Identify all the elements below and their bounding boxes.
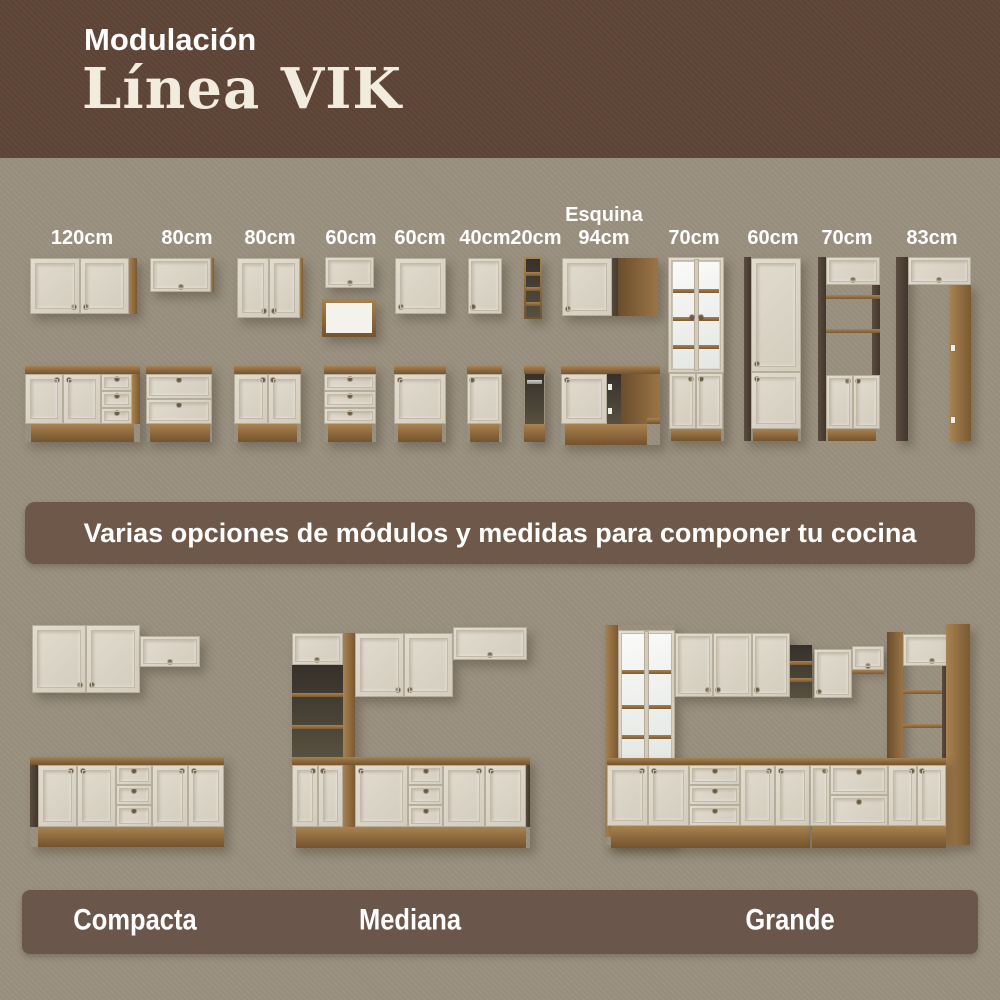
- poster-canvas: Modulación Línea VIK 120cm 80cm 80cm 60c…: [0, 0, 1000, 1000]
- module-label-size: 60cm: [394, 227, 445, 250]
- wall-cabinet-60cm: [395, 258, 446, 314]
- open-shelf: [607, 374, 621, 424]
- plinth: [470, 424, 499, 442]
- module-label-size: 120cm: [51, 227, 113, 250]
- base-corner-cabinet-94cm: [561, 366, 660, 445]
- hinge: [951, 417, 955, 423]
- knob: [271, 378, 275, 382]
- door: [669, 373, 696, 429]
- door: [32, 625, 86, 693]
- flip-door: [908, 257, 971, 285]
- knob: [566, 307, 570, 311]
- door: [696, 373, 723, 429]
- door: [234, 374, 268, 424]
- knob: [396, 688, 400, 692]
- flip-door: [140, 636, 200, 667]
- module-label-83cm: 83cm: [887, 198, 977, 250]
- base-drawer-cabinet-80cm: [146, 366, 212, 442]
- knob: [910, 769, 914, 773]
- knob: [132, 809, 136, 813]
- tall-oven-tower-70cm: [818, 257, 880, 441]
- base-run: [30, 757, 224, 847]
- door: [80, 258, 129, 314]
- hinge: [951, 345, 955, 351]
- knob: [471, 305, 475, 309]
- side-ledge: [647, 418, 660, 424]
- drawer: [830, 795, 888, 826]
- wall-flip-cabinet: [852, 646, 884, 670]
- drawer: [324, 374, 376, 391]
- mullion: [645, 632, 648, 761]
- wall-flip-cabinet-60cm: [325, 257, 374, 288]
- knob: [489, 769, 493, 773]
- drawer: [324, 408, 376, 424]
- module-label-70cm-a: 70cm: [649, 198, 739, 250]
- wall-cabinet-80cm: [237, 258, 303, 318]
- knob: [424, 809, 428, 813]
- knob: [713, 769, 717, 773]
- drawer: [101, 374, 132, 391]
- plinth: [31, 424, 134, 442]
- corner-open-shelf: [790, 645, 812, 698]
- door: [751, 372, 801, 429]
- door: [467, 374, 502, 424]
- shelf: [790, 661, 812, 665]
- countertop: [324, 366, 376, 374]
- knob: [424, 789, 428, 793]
- wall-niche-60cm: [322, 299, 376, 337]
- door: [888, 765, 917, 826]
- flip-door: [453, 627, 527, 660]
- tower-unit: [292, 633, 355, 757]
- countertop: [524, 366, 545, 374]
- base-run-right: [810, 758, 946, 848]
- countertop: [467, 366, 502, 374]
- kitchen-label-compacta: Compacta: [73, 904, 196, 938]
- base-cabinet-60cm: [394, 366, 446, 442]
- base-cabinet-40cm: [467, 366, 502, 442]
- base-run: [292, 757, 530, 848]
- knob: [408, 688, 412, 692]
- flip-door: [826, 257, 880, 285]
- plinth: [828, 429, 876, 441]
- module-label-size: 70cm: [821, 227, 872, 250]
- door: [188, 765, 224, 827]
- base-run-left: [607, 758, 810, 848]
- open-shelf: [292, 665, 343, 757]
- knob: [90, 683, 94, 687]
- open-shelf: [790, 645, 812, 698]
- knob: [937, 278, 941, 282]
- knob: [272, 309, 276, 313]
- shelf: [826, 295, 880, 299]
- shelf: [292, 725, 343, 729]
- plinth: [812, 826, 946, 848]
- knob: [755, 377, 759, 381]
- door: [25, 374, 63, 424]
- knob: [132, 769, 136, 773]
- door: [751, 258, 801, 372]
- knob: [470, 378, 474, 382]
- module-label-70cm-b: 70cm: [802, 198, 892, 250]
- plinth: [38, 827, 224, 847]
- module-label-size: 70cm: [668, 227, 719, 250]
- wood-panel: [887, 632, 903, 758]
- door: [318, 765, 343, 827]
- countertop: [810, 758, 946, 765]
- knob: [348, 377, 352, 381]
- door: [648, 765, 689, 826]
- module-label-size: 60cm: [325, 227, 376, 250]
- door: [269, 258, 300, 318]
- knob: [132, 789, 136, 793]
- knob: [168, 660, 172, 664]
- knob: [261, 378, 265, 382]
- shelf: [826, 329, 880, 333]
- knob: [652, 769, 656, 773]
- plinth: [150, 424, 210, 442]
- door: [355, 765, 408, 827]
- knob: [713, 789, 717, 793]
- door: [395, 258, 446, 314]
- knob: [321, 769, 325, 773]
- hinge: [608, 384, 612, 390]
- open-niche: [326, 303, 372, 333]
- door: [86, 625, 140, 693]
- door: [30, 258, 80, 314]
- knob: [716, 688, 720, 692]
- countertop: [30, 757, 224, 765]
- shelf: [526, 302, 540, 306]
- module-label-size: 20cm: [510, 227, 561, 250]
- dark-panel: [30, 765, 38, 827]
- wall-cabinet-40cm: [468, 258, 502, 314]
- knob: [706, 688, 710, 692]
- flip-door: [150, 258, 211, 292]
- countertop: [607, 758, 810, 765]
- header-band: Modulación Línea VIK: [0, 0, 1000, 158]
- knob: [857, 770, 861, 774]
- wall-corner-cabinet-94cm: [562, 258, 658, 316]
- shelf: [292, 693, 343, 697]
- knob: [851, 278, 855, 282]
- wall-cabinet: [32, 625, 140, 693]
- knob: [488, 653, 492, 657]
- knob: [817, 690, 821, 694]
- dark-panel: [818, 257, 826, 441]
- drawer: [101, 408, 132, 424]
- kitchen-size-bar: Compacta Mediana Grande: [22, 890, 978, 954]
- towel-rail: [527, 380, 542, 384]
- plinth: [565, 424, 647, 445]
- hinge: [608, 408, 612, 414]
- door: [713, 633, 752, 697]
- mullion: [695, 260, 698, 370]
- knob: [755, 688, 759, 692]
- door: [355, 633, 404, 697]
- door: [775, 765, 810, 826]
- module-label-size: 94cm: [578, 227, 629, 250]
- knob: [846, 379, 850, 383]
- dark-panel: [896, 257, 908, 441]
- door: [394, 374, 446, 424]
- door: [826, 375, 853, 429]
- drawer: [324, 391, 376, 408]
- knob: [179, 285, 183, 289]
- knob: [856, 379, 860, 383]
- drawer: [146, 399, 212, 424]
- wall-open-shelf-20cm: [524, 257, 542, 319]
- door: [237, 258, 269, 318]
- drawer: [830, 765, 888, 795]
- wood-panel: [621, 374, 660, 424]
- knob: [262, 309, 266, 313]
- shelf: [790, 678, 812, 682]
- drawer: [116, 765, 152, 785]
- drawer: [146, 374, 212, 399]
- plinth: [671, 429, 721, 441]
- door: [853, 375, 880, 429]
- module-label-size: 80cm: [244, 227, 295, 250]
- knob: [84, 305, 88, 309]
- module-label-size: 60cm: [747, 227, 798, 250]
- module-label-size: 80cm: [161, 227, 212, 250]
- knob: [640, 769, 644, 773]
- plinth: [524, 424, 545, 442]
- banner: Varias opciones de módulos y medidas par…: [25, 502, 975, 564]
- plinth: [328, 424, 372, 442]
- countertop: [146, 366, 212, 374]
- wood-panel: [129, 258, 137, 314]
- flip-door: [292, 633, 343, 665]
- header-kicker: Modulación: [84, 22, 256, 58]
- fridge-surround-83cm: [896, 257, 971, 441]
- knob: [78, 683, 82, 687]
- countertop: [25, 366, 140, 374]
- door: [63, 374, 101, 424]
- knob: [565, 378, 569, 382]
- knob: [311, 769, 315, 773]
- door: [468, 258, 502, 314]
- wall-cabinet: [814, 649, 852, 698]
- tall-pantry-60cm: [744, 257, 801, 441]
- door: [917, 765, 946, 826]
- door: [814, 649, 852, 698]
- knob: [55, 378, 59, 382]
- knob: [115, 377, 119, 381]
- knob: [398, 378, 402, 382]
- knob: [689, 377, 693, 381]
- door: [443, 765, 485, 827]
- door: [292, 765, 318, 827]
- knob: [857, 800, 861, 804]
- base-cabinet-120cm: [25, 366, 140, 442]
- wood-panel: [946, 624, 970, 845]
- knob: [690, 315, 694, 319]
- dark-panel: [526, 765, 530, 827]
- module-label-120cm: 120cm: [37, 198, 127, 250]
- drawer: [689, 785, 740, 805]
- drawer: [689, 805, 740, 826]
- countertop: [234, 366, 301, 374]
- shelf: [526, 272, 540, 276]
- wall-flip-cabinet: [453, 627, 527, 660]
- door: [740, 765, 775, 826]
- knob: [348, 281, 352, 285]
- knob: [115, 411, 119, 415]
- countertop: [394, 366, 446, 374]
- module-label-esquina-94cm: Esquina94cm: [559, 198, 649, 250]
- wall-flip-cabinet: [140, 636, 200, 667]
- door: [77, 765, 116, 827]
- kitchen-label-grande: Grande: [745, 904, 834, 938]
- knob: [713, 809, 717, 813]
- drawer: [116, 805, 152, 827]
- module-label-80cm-a: 80cm: [142, 198, 232, 250]
- drawer: [408, 765, 443, 785]
- knob: [177, 378, 181, 382]
- knob: [359, 769, 363, 773]
- knob: [72, 305, 76, 309]
- module-label-size: 83cm: [906, 227, 957, 250]
- wall-flip-cabinet-80cm: [150, 258, 214, 292]
- door: [485, 765, 526, 827]
- plinth: [238, 424, 297, 442]
- flip-door: [852, 646, 884, 670]
- knob: [755, 362, 759, 366]
- dark-panel: [744, 257, 751, 441]
- knob: [779, 769, 783, 773]
- wood-panel: [132, 374, 140, 424]
- knob: [699, 315, 703, 319]
- knob: [348, 411, 352, 415]
- door: [561, 374, 607, 424]
- flip-door: [325, 257, 374, 288]
- plinth: [398, 424, 442, 442]
- door: [268, 374, 301, 424]
- knob: [348, 394, 352, 398]
- knob: [699, 377, 703, 381]
- knob: [767, 769, 771, 773]
- module-label-top: Esquina: [565, 204, 643, 227]
- wood-panel: [343, 765, 355, 827]
- door: [152, 765, 188, 827]
- wood-panel: [618, 258, 658, 316]
- knob: [177, 403, 181, 407]
- base-drawer-cabinet-60cm: [324, 366, 376, 442]
- shelf: [526, 287, 540, 291]
- knob: [823, 769, 827, 773]
- knob: [115, 394, 119, 398]
- knob: [866, 664, 870, 668]
- knob: [424, 769, 428, 773]
- countertop: [292, 757, 530, 765]
- wall-cabinet: [355, 633, 453, 697]
- knob: [67, 378, 71, 382]
- knob: [315, 658, 319, 662]
- door: [752, 633, 790, 697]
- countertop: [561, 366, 660, 374]
- drawer: [408, 805, 443, 827]
- tall-glass-cabinet-70cm: [668, 257, 724, 441]
- knob: [930, 659, 934, 663]
- knob: [192, 769, 196, 773]
- knob: [180, 769, 184, 773]
- plinth: [611, 826, 810, 848]
- plinth: [296, 827, 526, 848]
- wood-panel: [211, 258, 214, 292]
- drawer: [101, 391, 132, 408]
- knob: [920, 769, 924, 773]
- knob: [69, 769, 73, 773]
- plinth: [753, 429, 798, 441]
- shelf: [852, 670, 884, 674]
- door: [607, 765, 648, 826]
- drawer: [116, 785, 152, 805]
- knob: [477, 769, 481, 773]
- wall-cabinet-run: [675, 633, 790, 697]
- door: [810, 765, 830, 826]
- door: [404, 633, 453, 697]
- drawer: [408, 785, 443, 805]
- kitchen-label-mediana: Mediana: [359, 904, 461, 938]
- wood-panel: [343, 633, 355, 757]
- wood-panel: [300, 258, 303, 318]
- page-title: Línea VIK: [82, 56, 402, 122]
- base-cabinet-80cm: [234, 366, 301, 442]
- door: [562, 258, 612, 316]
- door: [675, 633, 713, 697]
- door: [38, 765, 77, 827]
- knob: [399, 305, 403, 309]
- knob: [81, 769, 85, 773]
- drawer: [689, 765, 740, 785]
- banner-text: Varias opciones de módulos y medidas par…: [84, 518, 917, 549]
- module-label-80cm-b: 80cm: [225, 198, 315, 250]
- base-open-rack-20cm: [524, 366, 545, 442]
- wall-cabinet-120cm: [30, 258, 137, 314]
